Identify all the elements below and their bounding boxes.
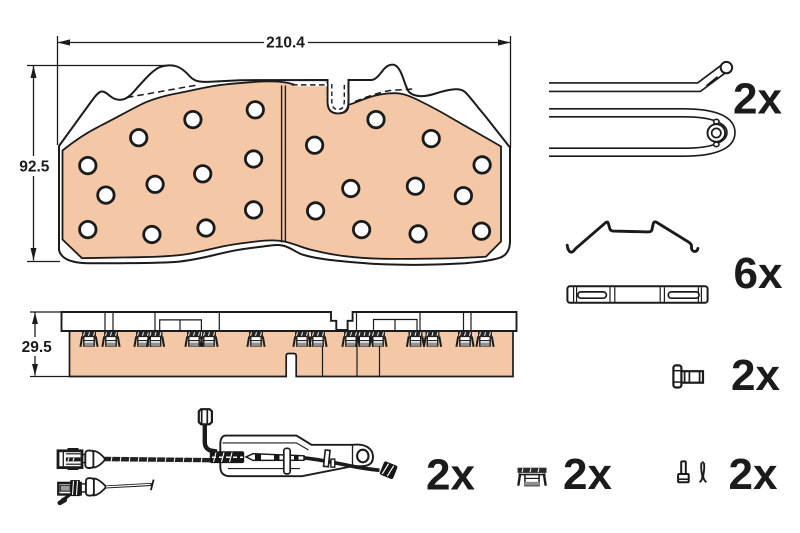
svg-text:2x: 2x	[731, 351, 780, 400]
svg-text:2x: 2x	[426, 451, 475, 500]
svg-text:2x: 2x	[563, 450, 612, 499]
svg-text:2x: 2x	[729, 450, 778, 499]
svg-text:6x: 6x	[734, 249, 783, 298]
svg-text:29.5: 29.5	[22, 339, 53, 356]
svg-text:92.5: 92.5	[19, 159, 50, 176]
svg-text:2x: 2x	[733, 75, 782, 124]
svg-text:210.4: 210.4	[266, 35, 305, 52]
